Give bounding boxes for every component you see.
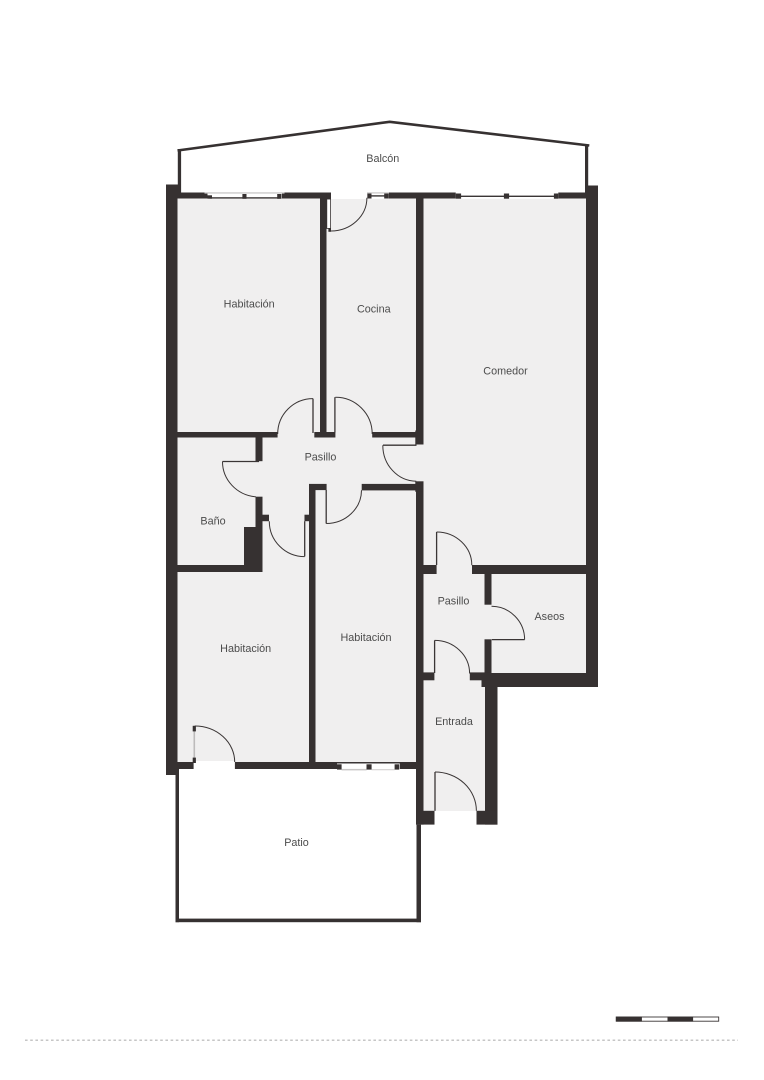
svg-text:Comedor: Comedor (483, 366, 528, 378)
svg-text:Habitación: Habitación (220, 643, 271, 655)
svg-text:Cocina: Cocina (357, 304, 391, 316)
svg-text:Entrada: Entrada (435, 716, 473, 728)
svg-text:Habitación: Habitación (224, 299, 275, 311)
svg-text:Baño: Baño (200, 516, 225, 528)
svg-text:Patio: Patio (284, 837, 309, 849)
svg-text:Habitación: Habitación (340, 632, 391, 644)
svg-text:Aseos: Aseos (534, 611, 565, 623)
svg-text:Pasillo: Pasillo (305, 452, 337, 464)
svg-text:Balcón: Balcón (366, 153, 399, 165)
svg-text:Pasillo: Pasillo (438, 595, 470, 607)
